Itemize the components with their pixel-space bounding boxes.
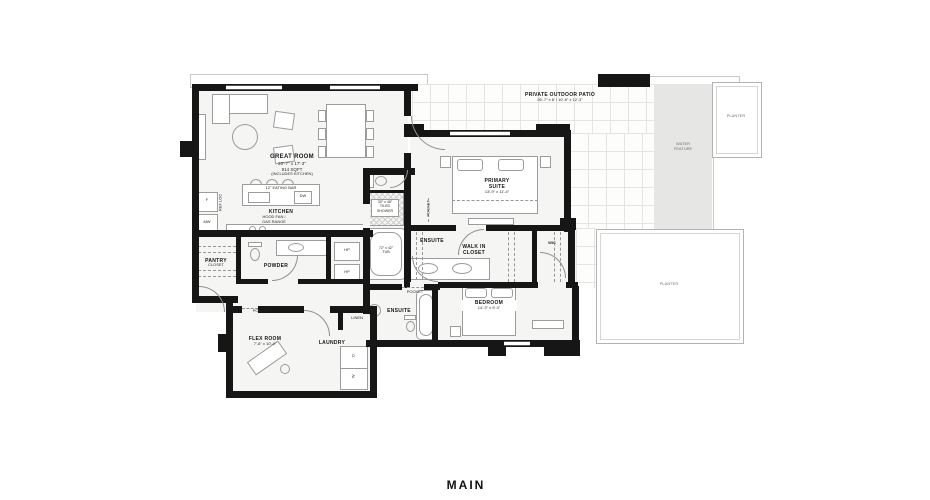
planter-bottom-label: PLANTER	[639, 282, 699, 287]
closet-rod	[514, 232, 515, 282]
ensuite-toilet-bowl	[375, 176, 387, 186]
door-gap	[538, 282, 566, 288]
bedroom-label-block: BEDROOM 14'-3" x 9'-3"	[461, 300, 517, 311]
pillow	[498, 159, 524, 171]
powder-label: POWDER	[246, 263, 306, 269]
wall	[432, 290, 438, 340]
window	[330, 85, 380, 90]
wall	[192, 230, 373, 237]
closet-label: CLOSET	[196, 263, 236, 268]
ensuite2-tub-basin	[419, 294, 433, 336]
ref-loc-label: REF LOC	[219, 189, 224, 215]
walk-in-closet-label-2: CLOSET	[446, 250, 502, 256]
flex-room-dims: 7'-8" x 10'-4"	[234, 342, 296, 347]
wall-pier	[180, 141, 193, 157]
pillow	[491, 288, 513, 298]
wall-pier	[560, 218, 576, 230]
wall-stub	[544, 347, 580, 356]
powder-toilet-bowl	[250, 248, 260, 261]
dw-label: DW	[295, 194, 311, 199]
great-room-note: (INCLUDES KITCHEN)	[252, 172, 332, 177]
shower-word: SHOWER	[371, 209, 399, 213]
island-sink	[248, 192, 270, 203]
wall-pier	[598, 74, 650, 87]
ensuite2-toilet-bowl	[406, 321, 415, 332]
dining-chair	[366, 146, 374, 158]
water-feature-label-block: WATER FEATURE	[656, 142, 710, 152]
hood-label-block: HOOD FAN / GAS RANGE	[246, 215, 302, 225]
wall	[404, 225, 572, 231]
water-feature	[654, 84, 712, 231]
planter-box-top	[712, 82, 762, 158]
patio-tiles-side	[576, 228, 596, 288]
window	[450, 131, 510, 136]
armchair-1	[273, 111, 295, 131]
wall	[226, 391, 377, 398]
flex-side-table	[280, 364, 290, 374]
hp-label: HP	[334, 270, 360, 275]
dining-chair	[366, 110, 374, 122]
wall	[366, 284, 402, 290]
wall	[236, 279, 370, 284]
pocket-gap	[363, 204, 370, 228]
microwave-label: MW	[196, 220, 218, 225]
wall	[564, 130, 571, 232]
pocket-label: POCKET	[427, 195, 432, 221]
eating-bar-label: 12" EATING BAR	[252, 186, 310, 191]
nightstand	[440, 156, 451, 168]
dining-chair	[318, 110, 326, 122]
sofa-chaise	[212, 94, 230, 124]
bedroom-dims: 14'-3" x 9'-3"	[461, 306, 517, 311]
bedroom-table	[450, 326, 461, 337]
wic-label: WIC	[538, 241, 566, 246]
shower-label-block: 30" x 48" TILED SHOWER	[371, 200, 399, 213]
hood-label-2: GAS RANGE	[246, 220, 302, 225]
wall	[404, 84, 411, 116]
linen-label: LINEN	[342, 316, 372, 321]
tub-label-block: 72" x 42" TUB	[368, 246, 404, 255]
wall	[326, 237, 331, 280]
blanket-line	[452, 200, 538, 201]
nightstand	[540, 156, 551, 168]
closet-rod	[508, 232, 509, 282]
patio-tiles-right	[570, 133, 654, 231]
pantry-shelf-line	[198, 252, 236, 253]
window	[226, 85, 282, 90]
walk-in-closet-label-block: WALK IN CLOSET	[446, 244, 502, 256]
great-room-label: GREAT ROOM	[252, 154, 332, 161]
flex-room-label-block: FLEX ROOM 7'-8" x 10'-4"	[234, 336, 296, 347]
dryer-label: D	[352, 347, 357, 363]
coffee-table	[232, 124, 258, 150]
pocket-door-dash	[402, 287, 424, 288]
planter-top-label: PLANTER	[714, 114, 758, 119]
closet-rod-line	[198, 276, 236, 277]
wall	[226, 306, 242, 313]
closet-rod-line	[198, 270, 236, 271]
dining-chair	[318, 128, 326, 140]
wall	[568, 228, 575, 286]
plan-title: MAIN	[410, 478, 522, 492]
water-feature-label-2: FEATURE	[656, 147, 710, 152]
bedroom-bench	[532, 320, 564, 329]
pocket-label: POCKET	[246, 309, 276, 314]
hp-label: HP	[334, 248, 360, 253]
primary-suite-dims: 13'-9" x 11'-4"	[470, 190, 524, 195]
tub-word: TUB	[368, 250, 404, 254]
pillow	[465, 288, 487, 298]
wall-stub	[488, 347, 506, 356]
laundry-label: LAUNDRY	[302, 340, 362, 346]
floor-plan-canvas: GREAT ROOM 20'-7" x 17'-3" 914 SQFT (INC…	[0, 0, 930, 500]
media-console	[198, 114, 206, 160]
great-room-label-block: GREAT ROOM 20'-7" x 17'-3" 914 SQFT (INC…	[252, 154, 332, 177]
fridge-label: F	[196, 198, 218, 203]
dining-chair	[366, 128, 374, 140]
pantry-shelf-line	[198, 246, 236, 247]
wall	[366, 340, 580, 347]
dining-table	[326, 104, 366, 158]
washer-label: W	[352, 368, 357, 384]
window	[504, 341, 530, 346]
ensuite2-toilet-tank	[404, 315, 416, 320]
primary-suite-label-block: PRIMARY SUITE 13'-9" x 11'-4"	[470, 178, 524, 195]
wall-pier	[218, 334, 227, 352]
bed-bench	[468, 218, 514, 225]
ensuite-second-label: ENSUITE	[374, 308, 424, 314]
wall	[226, 300, 233, 396]
wall-pier	[536, 124, 570, 133]
powder-sink	[288, 243, 304, 252]
wall	[532, 228, 537, 284]
powder-toilet-tank	[248, 242, 262, 247]
wall	[572, 286, 579, 347]
pocket-label: POCKET	[400, 290, 430, 295]
patio-label-block: PRIVATE OUTDOOR PATIO 26'-7" x 8' / 10'-…	[495, 92, 625, 103]
nook-divider	[363, 190, 407, 193]
vanity-sink	[452, 263, 472, 274]
patio-dims: 26'-7" x 8' / 10'-8" x 12'-3"	[495, 98, 625, 103]
pillow	[457, 159, 483, 171]
